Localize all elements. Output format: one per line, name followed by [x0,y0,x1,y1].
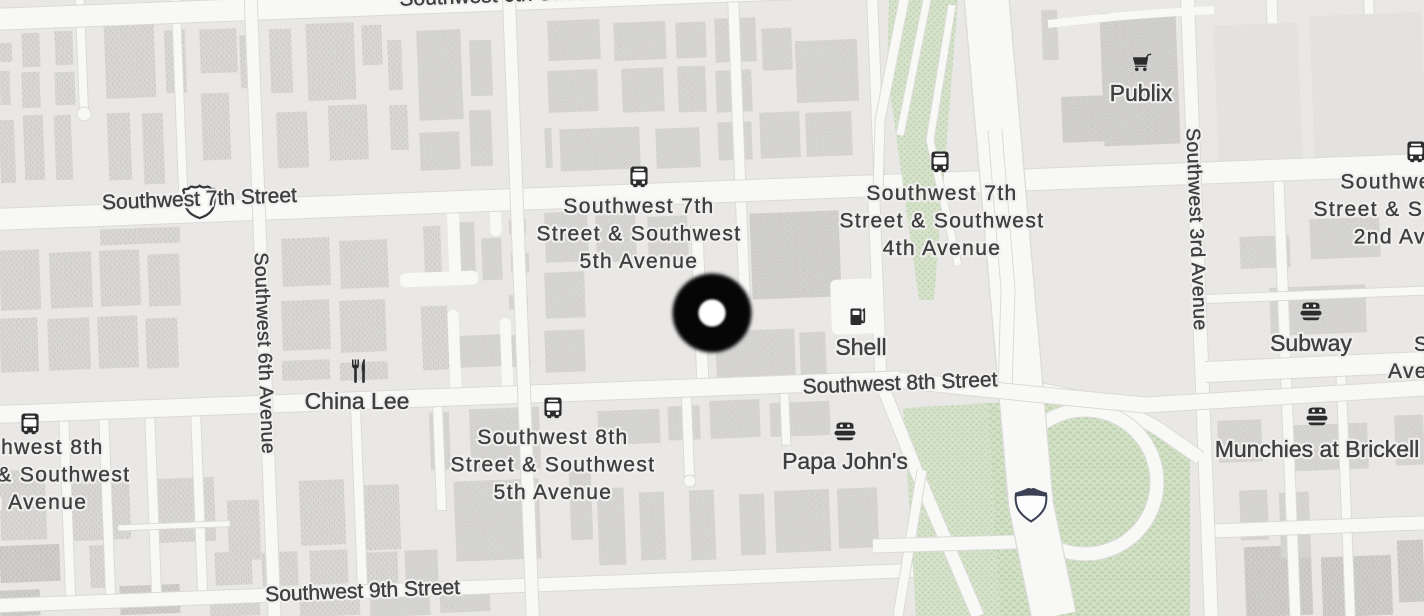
svg-text:Munchies at Brickell: Munchies at Brickell [1215,436,1420,462]
svg-text:Publix: Publix [1110,80,1173,106]
svg-text:China Lee: China Lee [305,388,410,414]
svg-text:Southwest: Southwest [1414,333,1424,356]
svg-text:Papa John's: Papa John's [782,448,908,474]
svg-text:Subway: Subway [1270,330,1352,356]
svg-text:Shell: Shell [835,334,886,360]
svg-text:Avenue: Avenue [1388,360,1424,383]
